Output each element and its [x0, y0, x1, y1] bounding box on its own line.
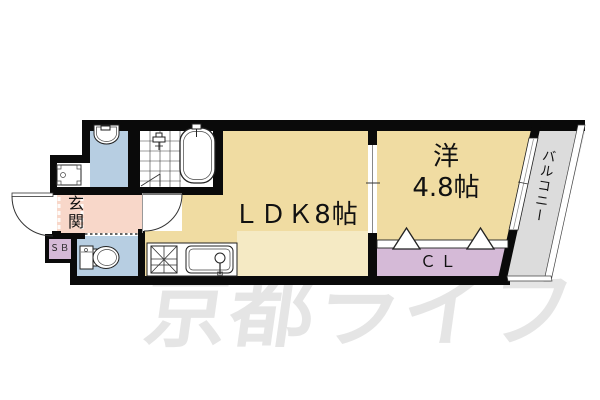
closet-label: ＣＬ [408, 248, 472, 272]
western-room-label-line1: 洋 [393, 142, 499, 173]
washing-machine [57, 165, 81, 185]
kitchen-sink [186, 246, 233, 275]
entrance-door [12, 193, 53, 236]
wall-top [82, 120, 585, 131]
shoebox-label: ＳＢ [47, 241, 73, 254]
ldk-room-label: ＬＤＫ8帖 [222, 194, 370, 231]
western-room-label: 洋 4.8帖 [393, 142, 499, 204]
bathtub [180, 124, 215, 183]
kitchen-counter [147, 243, 237, 276]
floor-plan: 京都ライフ [0, 0, 600, 400]
western-room-label-line2: 4.8帖 [393, 173, 499, 204]
toilet [80, 246, 119, 269]
hall-door [143, 193, 182, 231]
wall-toilet-right [138, 229, 145, 277]
hallway-floor [85, 193, 142, 233]
entrance-label: 玄関 [62, 195, 86, 235]
wall-bottom [70, 276, 510, 285]
washbasin [94, 125, 119, 144]
kitchen-floor-strip [237, 231, 368, 277]
gas-stove [151, 246, 177, 273]
wall-bath-left [128, 131, 140, 189]
